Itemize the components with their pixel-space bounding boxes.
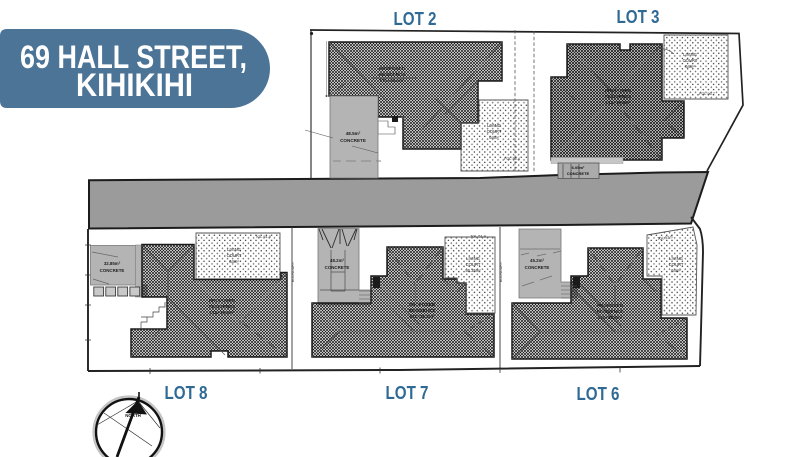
svg-text:KIHIKIHI: KIHIKIHI [76,67,193,103]
svg-text:64m²: 64m² [671,268,681,273]
svg-text:171+36.6m²: 171+36.6m² [210,310,235,315]
svg-text:BOUNDARY: BOUNDARY [499,261,503,282]
svg-text:32.85m²: 32.85m² [104,261,121,266]
svg-text:CONCRETE: CONCRETE [567,171,590,176]
svg-text:PROPOSED: PROPOSED [597,303,624,308]
svg-text:LOT 2: LOT 2 [394,9,437,29]
svg-text:RESIDENCE: RESIDENCE [597,309,624,314]
svg-text:171+36.6m²: 171+36.6m² [380,78,405,83]
svg-text:CONCRETE: CONCRETE [100,268,125,273]
svg-text:6.05m²: 6.05m² [572,165,585,170]
svg-text:LIVING: LIVING [669,256,683,261]
svg-text:64m²: 64m² [685,64,695,69]
svg-text:COURT: COURT [683,58,698,63]
svg-text:LIVING: LIVING [227,247,241,252]
svg-text:LIVING: LIVING [466,256,480,261]
svg-text:FGL 56.7: FGL 56.7 [699,92,715,96]
svg-text:FGL 56.4: FGL 56.4 [504,157,520,161]
svg-text:LOT 7: LOT 7 [386,383,429,403]
svg-text:64m²: 64m² [489,135,499,140]
svg-text:PROPOSED: PROPOSED [605,88,632,93]
svg-text:7GL 51.9: 7GL 51.9 [255,235,270,239]
svg-text:COURT: COURT [466,262,481,267]
svg-text:48.5m²: 48.5m² [346,131,361,136]
svg-text:LIVING: LIVING [683,52,697,57]
svg-text:48.2m²: 48.2m² [330,258,344,263]
svg-text:LIVING: LIVING [487,123,501,128]
svg-text:COURT: COURT [669,262,684,267]
svg-text:LOT 3: LOT 3 [617,7,660,27]
svg-text:CONCRETE: CONCRETE [325,265,350,270]
svg-text:7GL 51.9: 7GL 51.9 [470,235,485,239]
svg-text:171+36.6m²: 171+36.6m² [606,100,631,105]
svg-text:PROPOSED: PROPOSED [409,302,436,307]
svg-text:RESIDENCE: RESIDENCE [605,94,632,99]
svg-text:PROPOSED: PROPOSED [379,66,406,71]
svg-text:171+36.6m²: 171+36.6m² [598,315,623,320]
svg-text:CONCRETE: CONCRETE [340,138,366,143]
svg-text:COURT: COURT [227,253,242,258]
svg-text:RESIDENCE: RESIDENCE [209,304,236,309]
svg-text:171+36.6m²: 171+36.6m² [410,314,435,319]
svg-text:RESIDENCE: RESIDENCE [379,72,406,77]
svg-text:LOT 6: LOT 6 [577,384,620,404]
svg-text:64m²: 64m² [229,259,239,264]
svg-text:RESIDENCE: RESIDENCE [409,308,436,313]
svg-text:NORTH: NORTH [125,413,141,418]
svg-text:CONCRETE: CONCRETE [525,265,550,270]
svg-text:PROPOSED: PROPOSED [209,298,236,303]
svg-text:BOUNDARY: BOUNDARY [291,261,295,282]
svg-text:LOT 8: LOT 8 [165,383,208,403]
svg-text:56.35m²: 56.35m² [465,268,481,273]
svg-text:COURT: COURT [487,129,502,134]
svg-text:45.2m²: 45.2m² [530,258,544,263]
